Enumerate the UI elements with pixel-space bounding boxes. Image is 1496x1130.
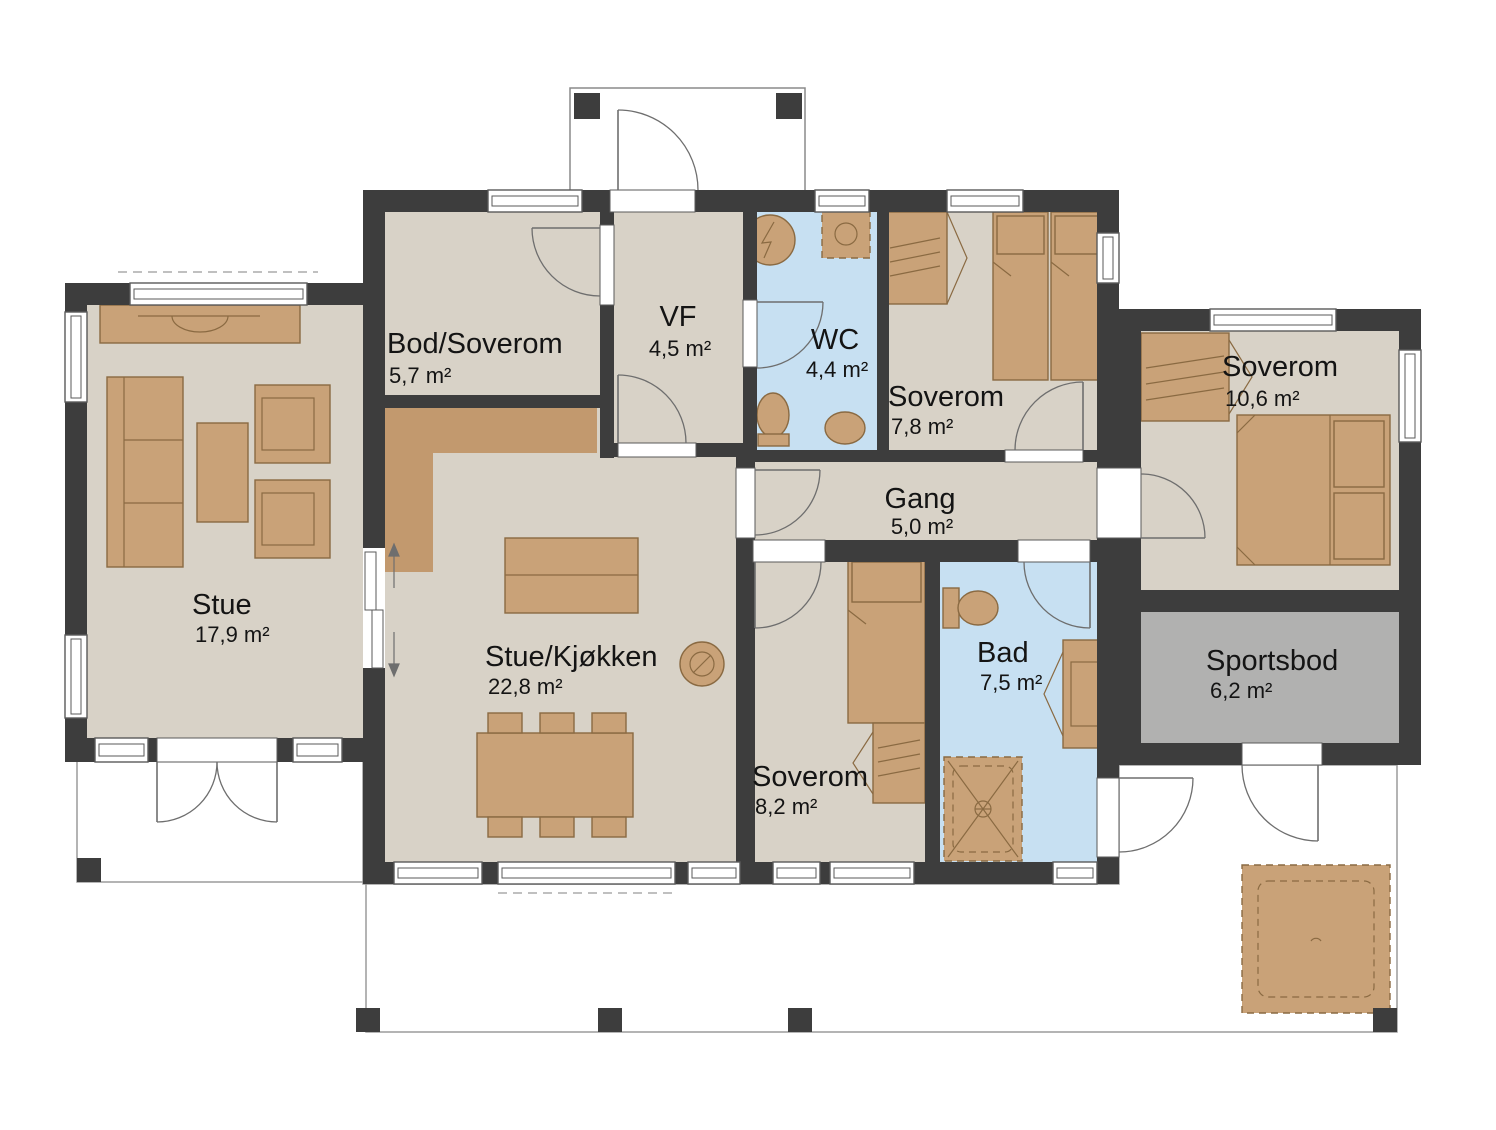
window [65, 312, 87, 402]
tv-bench [100, 305, 300, 343]
dining-chair [592, 817, 626, 837]
armchair [255, 385, 330, 463]
room-area-soverom-78: 7,8 m² [891, 414, 953, 439]
dining-chair [488, 817, 522, 837]
sofa [107, 377, 183, 567]
window [830, 862, 914, 884]
room-area-vf: 4,5 m² [649, 336, 711, 361]
window [293, 738, 342, 762]
window [130, 283, 307, 305]
window [947, 190, 1023, 212]
room-label-soverom-78: Soverom [888, 381, 1004, 413]
floor-plan-drawing: Stue 17,9 m² Bod/Soverom 5,7 m² VF 4,5 m… [0, 0, 1496, 1130]
room-label-stue-kjokken: Stue/Kjøkken [485, 641, 657, 673]
dining-table [477, 733, 633, 817]
window [1097, 233, 1119, 283]
window [773, 862, 820, 884]
room-label-sportsbod: Sportsbod [1206, 645, 1338, 677]
dining-chair [592, 713, 626, 733]
window [688, 862, 740, 884]
wardrobe [885, 212, 947, 304]
window [815, 190, 869, 212]
room-area-soverom-106: 10,6 m² [1225, 386, 1300, 411]
room-area-gang: 5,0 m² [891, 514, 953, 539]
room-area-bod-soverom: 5,7 m² [389, 363, 451, 388]
dining-chair [540, 713, 574, 733]
room-label-bod-soverom: Bod/Soverom [387, 328, 563, 360]
room-area-stue-kjokken: 22,8 m² [488, 674, 563, 699]
toilet [943, 588, 959, 628]
room-area-sportsbod: 6,2 m² [1210, 678, 1272, 703]
wardrobe [1141, 333, 1229, 421]
toilet [757, 393, 789, 437]
window [394, 862, 482, 884]
armchair [255, 480, 330, 558]
room-area-wc: 4,4 m² [806, 357, 868, 382]
sink [825, 412, 865, 444]
room-label-gang: Gang [885, 483, 956, 515]
wardrobe [873, 723, 925, 803]
room-label-stue: Stue [192, 589, 252, 621]
room-area-stue: 17,9 m² [195, 622, 270, 647]
hot-tub [1242, 865, 1390, 1013]
window [1399, 350, 1421, 442]
room-label-soverom-82: Soverom [752, 761, 868, 793]
room-label-wc: WC [811, 324, 859, 356]
room-label-soverom-106: Soverom [1222, 351, 1338, 383]
window [65, 635, 87, 718]
window [498, 862, 675, 884]
window [488, 190, 582, 212]
room-area-soverom-82: 8,2 m² [755, 794, 817, 819]
dining-chair [540, 817, 574, 837]
floor-plan-page: Stue 17,9 m² Bod/Soverom 5,7 m² VF 4,5 m… [0, 0, 1496, 1130]
dining-chair [488, 713, 522, 733]
window [1210, 309, 1336, 331]
washing-machine [822, 210, 870, 258]
room-label-bad: Bad [977, 637, 1029, 669]
coffee-table [197, 423, 248, 522]
window [1053, 862, 1097, 884]
shower [944, 757, 1022, 861]
room-area-bad: 7,5 m² [980, 670, 1042, 695]
room-label-vf: VF [659, 301, 696, 333]
entrance-porch [570, 88, 805, 192]
window [95, 738, 148, 762]
